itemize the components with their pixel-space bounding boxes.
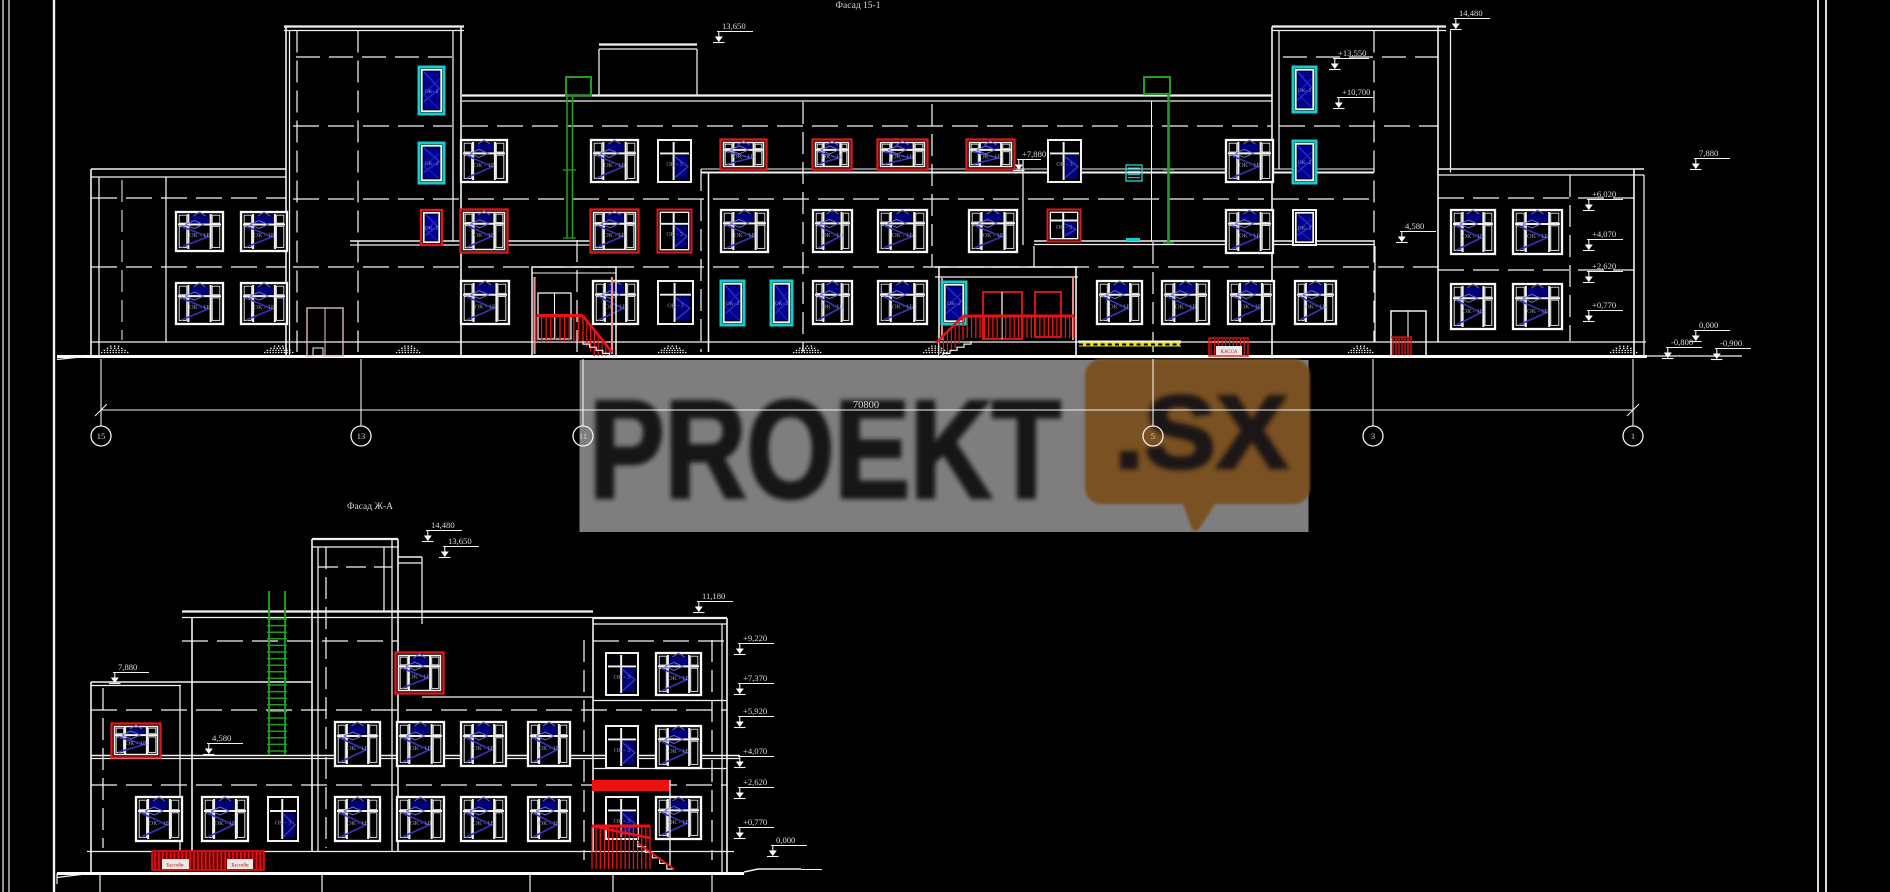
svg-text:1: 1	[1631, 431, 1635, 441]
svg-text:ОК - 1Б: ОК - 1Б	[822, 304, 843, 311]
svg-text:ОК - 1Б: ОК - 1Б	[189, 232, 210, 239]
svg-text:Бассейн: Бассейн	[166, 864, 183, 869]
svg-text:ОК - 1Б: ОК - 1Б	[347, 820, 368, 827]
svg-text:+7,880: +7,880	[1022, 149, 1046, 159]
svg-text:4,580: 4,580	[212, 733, 231, 743]
svg-text:ОК - 1Б: ОК - 1Б	[892, 304, 913, 311]
svg-text:13: 13	[357, 431, 366, 441]
svg-text:ОК - 1Б: ОК - 1Б	[1462, 233, 1483, 240]
svg-text:Фасад 15-1: Фасад 15-1	[836, 1, 881, 11]
svg-text:ОК - 1Б: ОК - 1Б	[668, 819, 689, 826]
svg-text:+5,920: +5,920	[743, 706, 767, 716]
svg-text:ОК - 1Б: ОК - 1Б	[214, 820, 235, 827]
svg-text:3: 3	[1371, 431, 1375, 441]
svg-text:ОК - 1Б: ОК - 1Б	[892, 154, 913, 161]
svg-text:0,000: 0,000	[1699, 320, 1718, 330]
svg-text:ОК - 1Б: ОК - 1Б	[1527, 308, 1548, 315]
svg-text:ОК- 2: ОК- 2	[425, 161, 439, 167]
svg-text:ОК - 3: ОК - 3	[666, 162, 682, 168]
svg-text:ОК - 1Б: ОК - 1Б	[1109, 304, 1130, 311]
svg-text:ОК - 1Б: ОК - 1Б	[473, 162, 494, 169]
svg-text:ОК - 1Б: ОК - 1Б	[538, 745, 559, 752]
svg-text:ОК - 1Б: ОК - 1Б	[1240, 304, 1261, 311]
svg-text:+6,020: +6,020	[1592, 189, 1616, 199]
svg-text:ОК - 1Б: ОК - 1Б	[668, 675, 689, 682]
svg-text:ОК- 2: ОК- 2	[1298, 160, 1312, 166]
svg-text:ОК - 1Б: ОК - 1Б	[604, 162, 625, 169]
svg-text:11,180: 11,180	[702, 591, 725, 601]
svg-text:Бассейн: Бассейн	[231, 864, 248, 869]
svg-text:ОК - 3: ОК - 3	[614, 748, 630, 754]
svg-text:ОК - 1Б: ОК - 1Б	[733, 154, 754, 161]
svg-text:ОК - 1Б: ОК - 1Б	[1527, 233, 1548, 240]
svg-text:+13,550: +13,550	[1338, 48, 1366, 58]
svg-text:ОК - 1Б: ОК - 1Б	[148, 820, 169, 827]
svg-text:ОК - 1Б: ОК - 1Б	[1239, 233, 1260, 240]
svg-text:ОК - 1Б: ОК - 1Б	[473, 820, 494, 827]
svg-text:ОК - 1Б: ОК - 1Б	[473, 745, 494, 752]
svg-text:ОК- 2: ОК- 2	[775, 301, 789, 307]
svg-text:ОК - 1Б: ОК - 1Б	[253, 232, 274, 239]
svg-text:ОК - 1Б: ОК - 1Б	[892, 232, 913, 239]
svg-text:ОК - 1Б: ОК - 1Б	[1462, 308, 1483, 315]
svg-text:-0,800: -0,800	[1671, 337, 1693, 347]
svg-text:ОК - 3: ОК - 3	[666, 232, 682, 238]
svg-text:15: 15	[97, 431, 106, 441]
svg-text:+2,620: +2,620	[1592, 261, 1616, 271]
svg-text:.SX: .SX	[1114, 374, 1288, 490]
svg-text:5: 5	[1151, 431, 1155, 441]
svg-text:70800: 70800	[853, 400, 879, 411]
svg-text:ОК- 2: ОК- 2	[1298, 225, 1312, 231]
svg-text:ОК - 3: ОК - 3	[1056, 162, 1072, 168]
svg-text:ОК - 3: ОК - 3	[275, 820, 291, 826]
svg-text:+4,070: +4,070	[1592, 229, 1616, 239]
svg-text:ОК - 1Б: ОК - 1Б	[822, 232, 843, 239]
svg-text:13,650: 13,650	[722, 21, 746, 31]
svg-text:ОК - 1Б: ОК - 1Б	[409, 674, 430, 681]
svg-text:ОК- 2: ОК- 2	[425, 89, 439, 95]
svg-text:14,480: 14,480	[1459, 8, 1483, 18]
svg-text:ОК - 3: ОК - 3	[614, 675, 630, 681]
svg-text:ОК - 1Б: ОК - 1Б	[980, 154, 1001, 161]
svg-text:ОК- 2: ОК- 2	[425, 225, 439, 231]
svg-text:ОК - 1Б: ОК - 1Б	[734, 232, 755, 239]
svg-text:ОК - 1Б: ОК - 1Б	[410, 745, 431, 752]
svg-text:ОК - 3: ОК - 3	[1056, 225, 1072, 231]
svg-text:4,580: 4,580	[1405, 221, 1424, 231]
svg-text:ОК - 1Б: ОК - 1Б	[410, 820, 431, 827]
svg-text:0,000: 0,000	[776, 835, 795, 845]
svg-text:ОК - 1Б: ОК - 1Б	[1305, 304, 1326, 311]
svg-text:+9,220: +9,220	[743, 633, 767, 643]
svg-text:ОК - 1Б: ОК - 1Б	[125, 740, 146, 747]
svg-text:ОК - 1Б: ОК - 1Б	[189, 304, 210, 311]
svg-text:КАССА: КАССА	[1221, 350, 1238, 355]
svg-text:ОК - 1Б: ОК - 1Б	[538, 820, 559, 827]
svg-text:ОК - 1Б: ОК - 1Б	[473, 232, 494, 239]
svg-text:+2,620: +2,620	[743, 777, 767, 787]
svg-text:ОК- 2: ОК- 2	[726, 301, 740, 307]
svg-text:ОК- 2: ОК- 2	[1298, 88, 1312, 94]
svg-text:Фасад Ж-А: Фасад Ж-А	[347, 502, 393, 512]
svg-text:13,650: 13,650	[448, 536, 472, 546]
svg-text:-0,900: -0,900	[1720, 338, 1742, 348]
svg-text:ОК - 1Б: ОК - 1Б	[1239, 162, 1260, 169]
svg-text:+10,700: +10,700	[1342, 87, 1370, 97]
svg-text:ОК- 2: ОК- 2	[947, 301, 961, 307]
svg-text:ОК - 1Б: ОК - 1Б	[982, 232, 1003, 239]
svg-text:ОК - 1Б: ОК - 1Б	[474, 304, 495, 311]
svg-text:+7,370: +7,370	[743, 673, 767, 683]
svg-text:PROEKT: PROEKT	[589, 372, 1061, 528]
svg-text:ОК - 3: ОК - 3	[614, 819, 630, 825]
svg-text:+0,770: +0,770	[1592, 300, 1616, 310]
svg-text:ОК - 1Б: ОК - 1Б	[668, 748, 689, 755]
svg-text:ОК - 1Б: ОК - 1Б	[821, 154, 842, 161]
svg-text:11: 11	[579, 431, 587, 441]
svg-text:14,480: 14,480	[431, 520, 455, 530]
svg-text:ОК - 1Б: ОК - 1Б	[347, 745, 368, 752]
svg-text:+0,770: +0,770	[743, 817, 767, 827]
svg-text:ОК - 1Б: ОК - 1Б	[604, 232, 625, 239]
svg-text:ОК - 1Б: ОК - 1Б	[253, 304, 274, 311]
svg-text:7,880: 7,880	[1699, 148, 1718, 158]
svg-text:+4,070: +4,070	[743, 746, 767, 756]
svg-text:7,880: 7,880	[118, 662, 137, 672]
svg-text:ОК - 3: ОК - 3	[667, 304, 683, 310]
svg-text:ОК - 1Б: ОК - 1Б	[1175, 304, 1196, 311]
